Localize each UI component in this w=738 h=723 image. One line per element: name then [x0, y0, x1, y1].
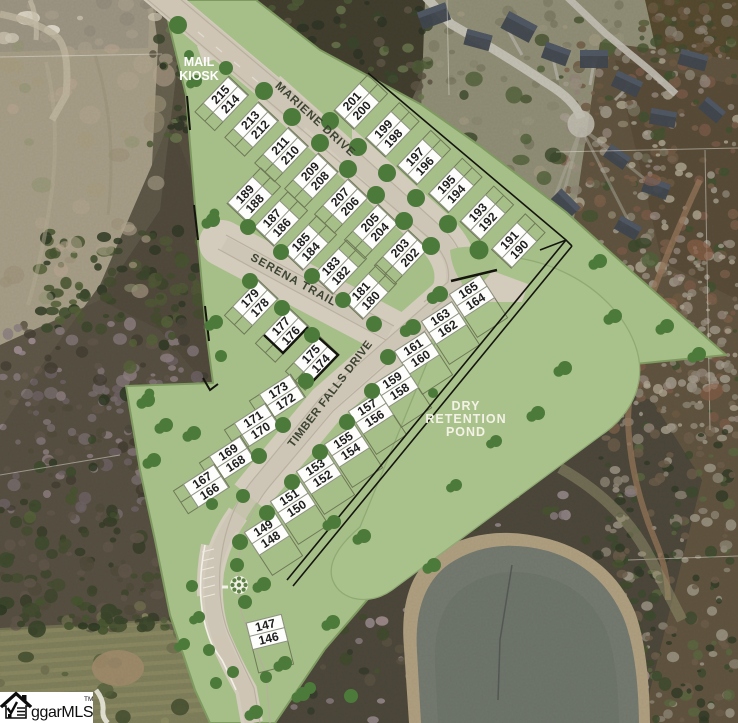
svg-text:MAIL: MAIL [184, 55, 215, 69]
svg-text:ggarMLS: ggarMLS [31, 704, 93, 721]
svg-text:KIOSK: KIOSK [179, 69, 219, 83]
svg-text:POND: POND [446, 425, 486, 439]
svg-text:DRY: DRY [452, 399, 481, 413]
svg-text:TM: TM [84, 696, 93, 703]
svg-text:RETENTION: RETENTION [425, 412, 506, 426]
